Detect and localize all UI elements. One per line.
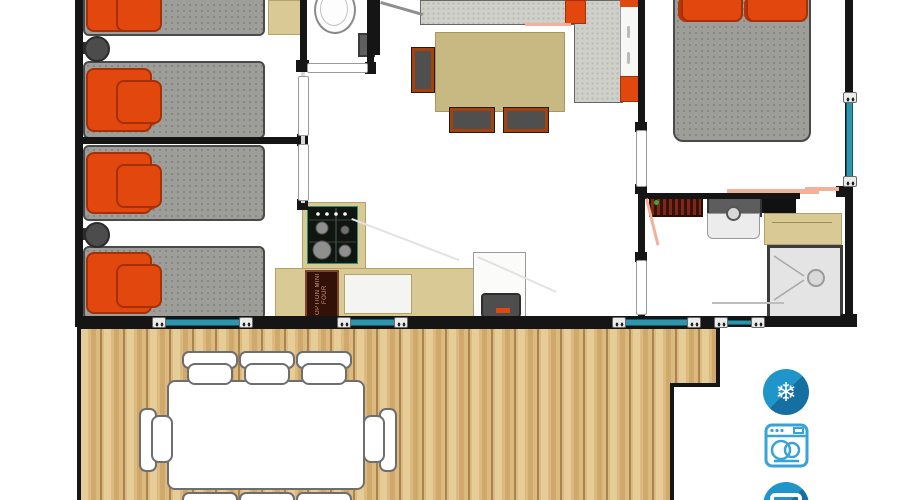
dining-chair — [412, 48, 434, 92]
terrace-table — [167, 380, 365, 490]
bathroom-sliding-door — [636, 260, 647, 315]
bathroom-counter-line — [772, 222, 832, 223]
storage-unit-top — [620, 0, 638, 7]
terrace-chair-seat — [244, 363, 290, 385]
radiator-valve — [654, 200, 659, 205]
dining-table — [435, 32, 565, 112]
microwave-handle — [496, 308, 510, 313]
terrace-chair-seat — [363, 415, 385, 463]
terrace-chair-back — [182, 492, 238, 500]
nightstand — [84, 36, 110, 62]
mini-oven-option: OPTION MINI FOUR — [305, 270, 339, 319]
terrace-chair-back — [296, 492, 352, 500]
pillow — [116, 80, 162, 124]
wc-sliding-door — [307, 63, 368, 73]
window — [620, 319, 692, 326]
snowflake-icon: ❄ — [775, 379, 797, 405]
pillow — [116, 0, 162, 32]
threshold-line — [712, 302, 784, 304]
bedroom-shelf — [268, 0, 301, 35]
terrace-chair-seat — [187, 363, 233, 385]
tv-badge — [763, 482, 809, 500]
dining-chair — [504, 108, 548, 132]
storage-handle — [627, 52, 630, 64]
dining-chair — [450, 108, 494, 132]
sofa-cushion — [565, 0, 586, 24]
wall-bathroom-top — [642, 193, 800, 199]
dishwasher-icon — [764, 423, 809, 468]
sofa-trim — [525, 23, 571, 26]
air-conditioning-badge: ❄ — [763, 369, 809, 415]
window-latch — [843, 176, 857, 187]
storage-unit-bottom — [620, 76, 640, 102]
faucet — [726, 206, 741, 221]
window-latch — [612, 317, 626, 328]
window-latch — [843, 92, 857, 103]
pillow — [681, 0, 743, 22]
bedroom-door — [298, 144, 309, 201]
overhead-cabinet-line — [351, 218, 459, 261]
window-latch — [714, 317, 728, 328]
wall-wc-left — [300, 0, 307, 64]
window-latch — [394, 317, 408, 328]
sofa — [420, 0, 576, 25]
window-latch — [239, 317, 253, 328]
mini-oven-option-label: OPTION MINI FOUR — [315, 272, 329, 317]
window-latch — [751, 317, 765, 328]
window — [160, 319, 244, 326]
terrace-chair-seat — [301, 363, 347, 385]
cooktop — [307, 206, 358, 264]
window — [846, 101, 853, 176]
wall-bedroom-divider — [75, 137, 305, 144]
wall-master-a — [638, 0, 645, 128]
bedroom-door — [298, 76, 309, 136]
kitchen-sink — [344, 274, 412, 314]
window-latch — [337, 317, 351, 328]
wall-entry-stub — [371, 0, 380, 55]
wall-left — [75, 0, 83, 327]
pillow — [746, 0, 808, 22]
storage-handle — [627, 26, 630, 38]
tv-icon — [770, 493, 802, 500]
bathroom-counter — [764, 213, 842, 245]
entry-door-leaf — [380, 1, 423, 16]
nightstand — [84, 222, 110, 248]
microwave — [481, 293, 521, 318]
terrace-chair-seat — [151, 415, 173, 463]
terrace-chair-back — [239, 492, 295, 500]
master-bedroom-door — [636, 130, 647, 187]
floorplan-canvas: OPTION MINI FOUR — [0, 0, 900, 500]
master-bath-door-leaf — [805, 187, 839, 191]
window — [345, 319, 399, 326]
window-latch — [687, 317, 701, 328]
pillow — [116, 164, 162, 208]
pillow — [116, 264, 162, 308]
window-latch — [152, 317, 166, 328]
